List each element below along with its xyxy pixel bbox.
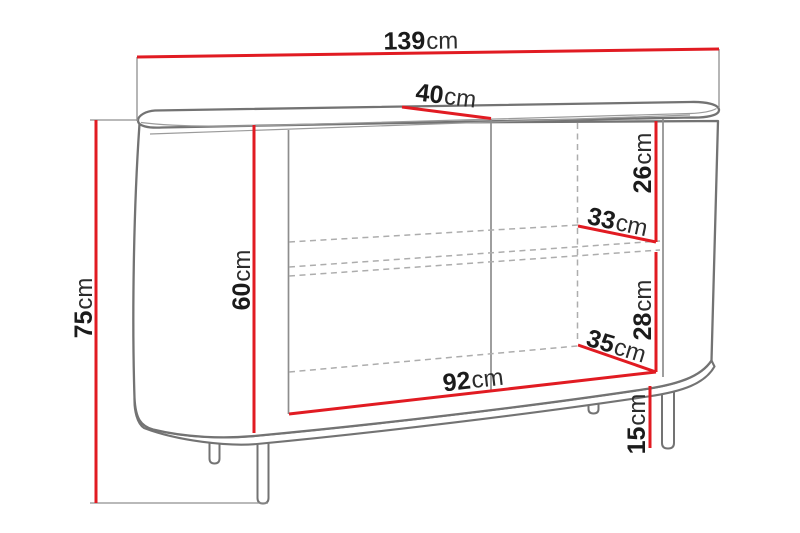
dimension-label-interior-height: 60cm — [228, 250, 256, 311]
dimension-value: 15 — [623, 427, 651, 455]
dimension-label-right-lower-height: 28cm — [629, 280, 657, 341]
dimension-diagram: 139cm 40cm 26cm 33cm 28cm 35cm 60cm 75cm… — [0, 0, 800, 533]
dimension-value: 33 — [585, 202, 618, 235]
dimension-unit: cm — [71, 278, 98, 310]
diagram-canvas: 139cm 40cm 26cm 33cm 28cm 35cm 60cm 75cm… — [0, 0, 800, 533]
dimension-value: 139 — [383, 27, 425, 56]
dimension-value: 26 — [629, 166, 657, 194]
dimension-label-total-height: 75cm — [70, 278, 98, 339]
dimension-unit: cm — [624, 394, 651, 426]
dimension-unit: cm — [470, 364, 505, 394]
dimension-value: 75 — [70, 311, 98, 339]
dimension-value: 40 — [414, 78, 445, 109]
dimension-label-leg-height: 15cm — [623, 394, 651, 455]
dimension-value: 28 — [629, 313, 657, 341]
dimension-unit: cm — [630, 280, 657, 312]
dimension-label-right-upper-height: 26cm — [629, 133, 657, 194]
dimension-unit: cm — [229, 250, 256, 282]
dimension-label-total-width: 139cm — [383, 26, 458, 55]
cabinet-leg-front-left — [258, 438, 269, 504]
dimension-unit: cm — [630, 133, 657, 165]
dimension-value: 92 — [441, 366, 472, 397]
dimension-value: 60 — [228, 283, 256, 311]
dimension-unit: cm — [426, 27, 458, 55]
dimension-unit: cm — [443, 83, 478, 114]
